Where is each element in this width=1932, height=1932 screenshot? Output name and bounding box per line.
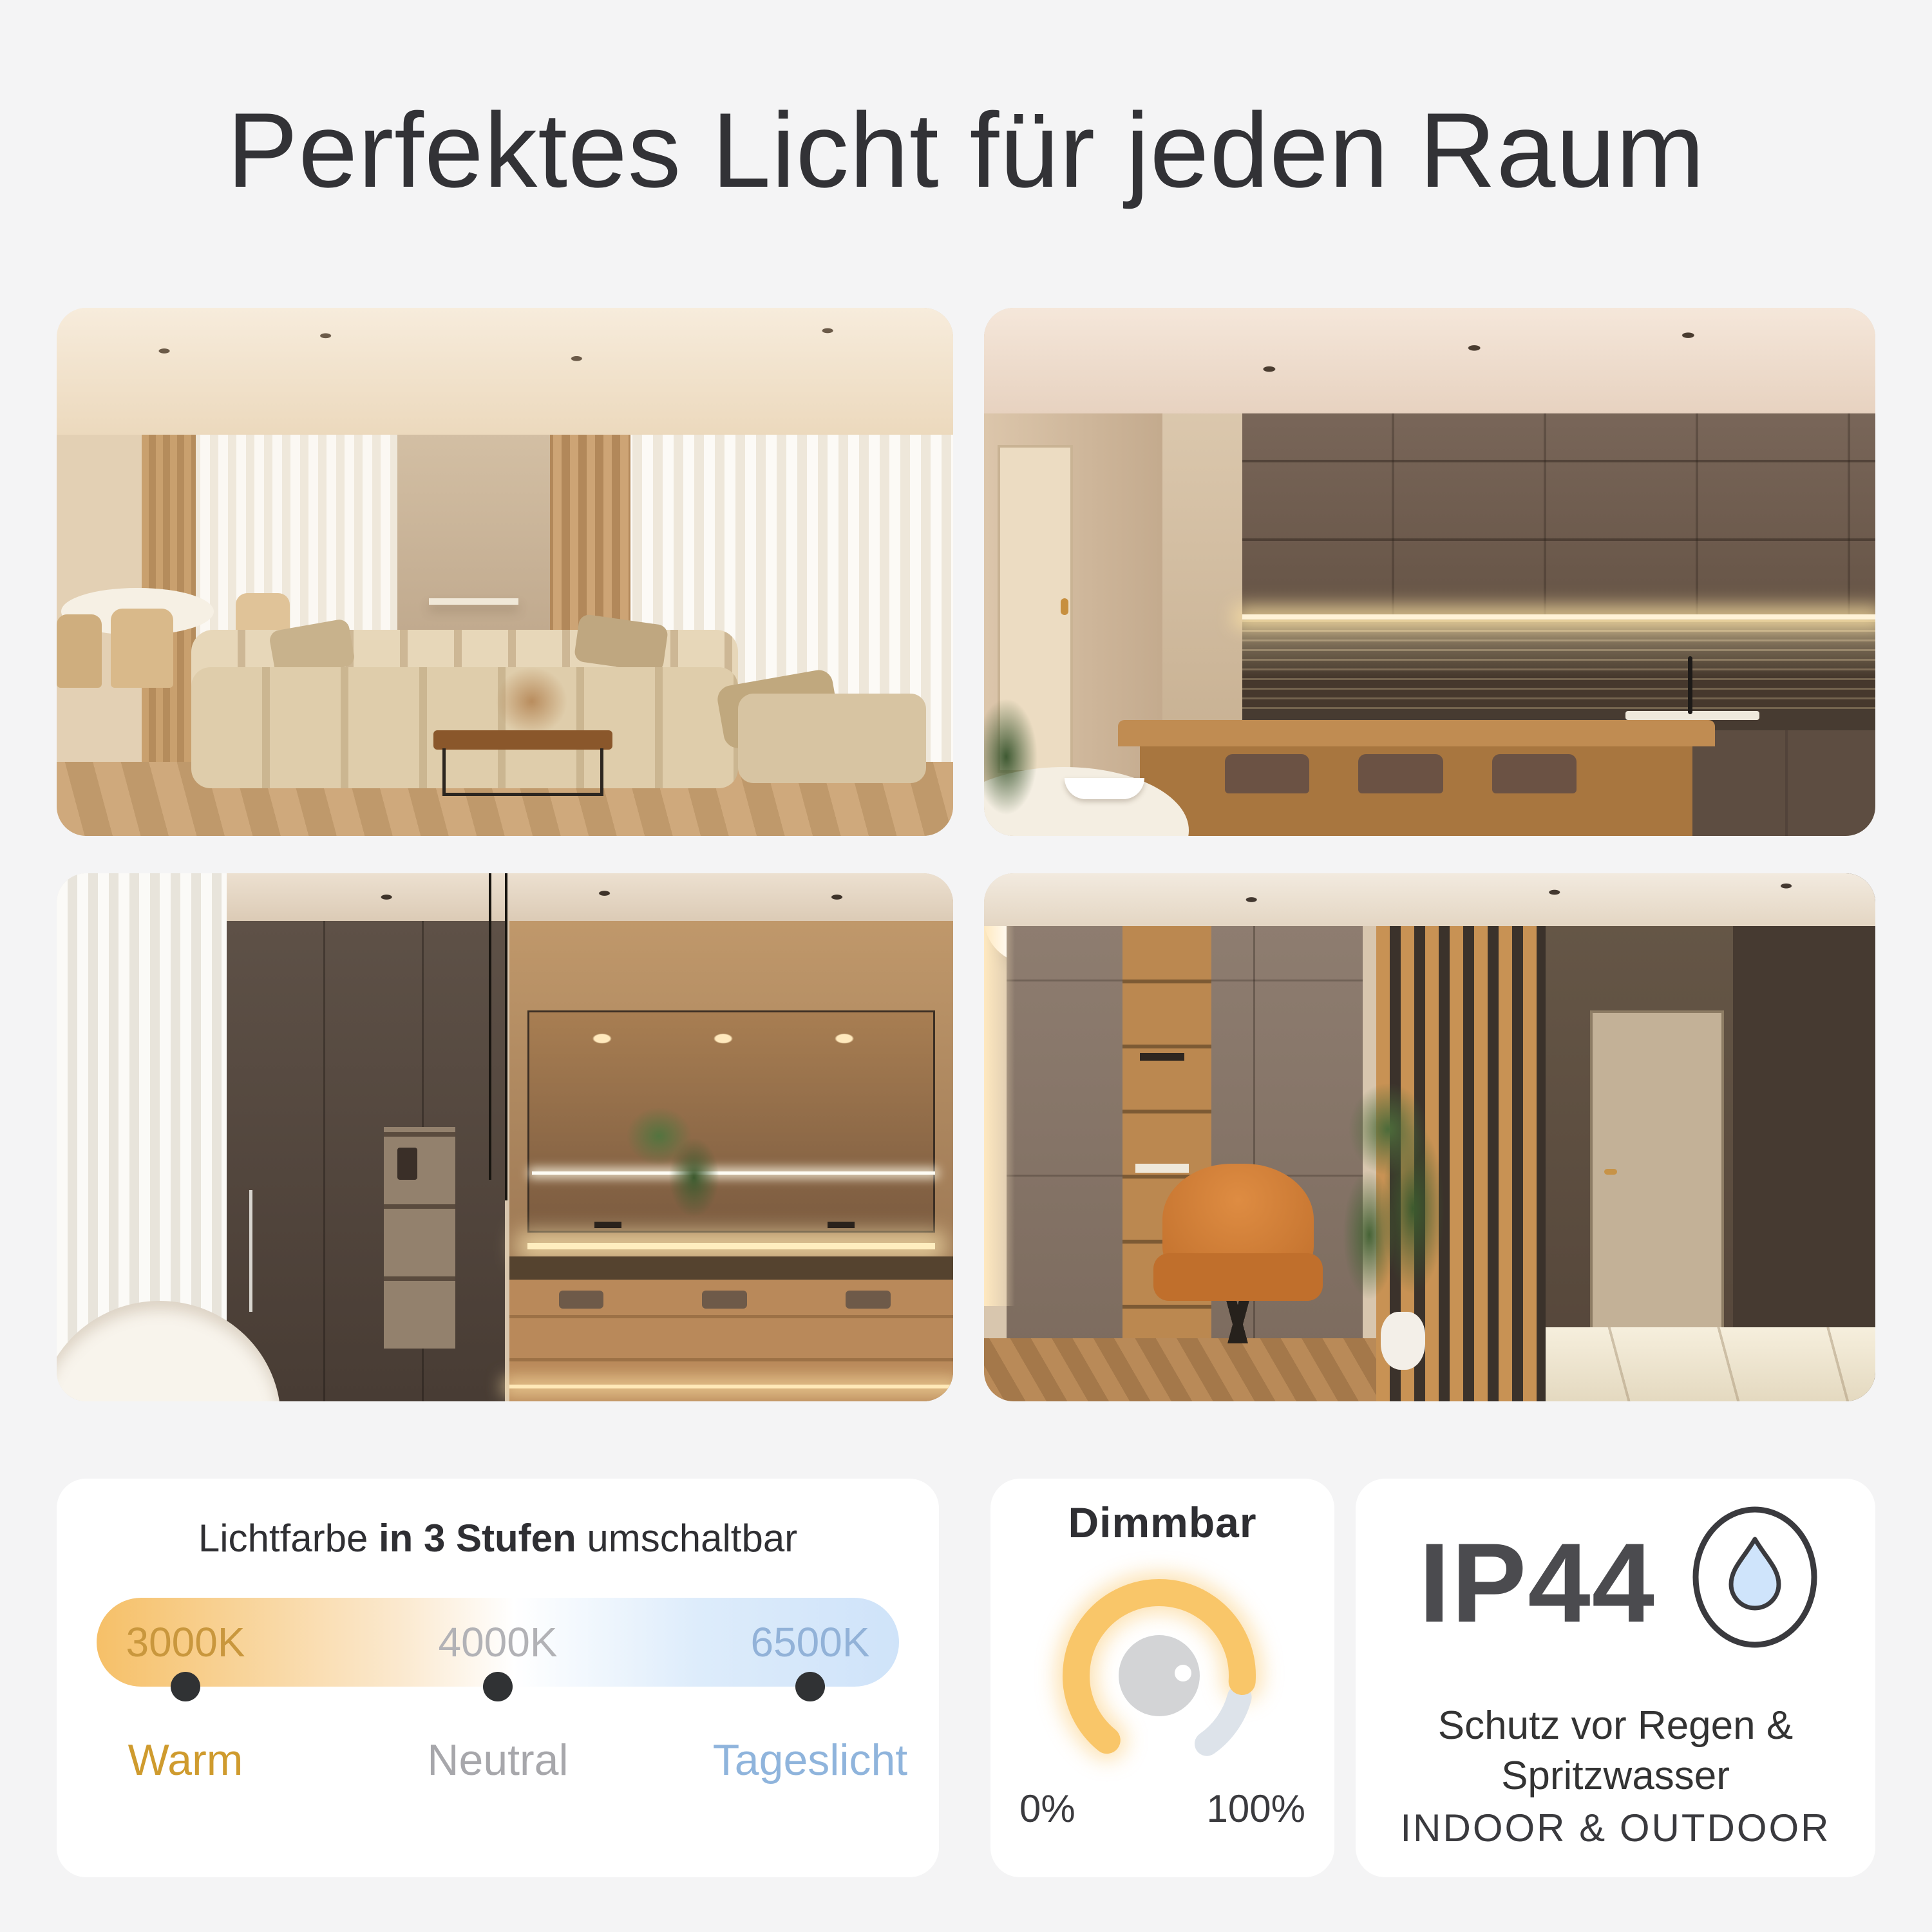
armchair-seat xyxy=(1153,1253,1323,1301)
ip44-panel: IP44 Schutz vor Regen & Spritzwasser IND… xyxy=(1356,1479,1875,1877)
towel xyxy=(846,1291,891,1309)
protection-text-line1: Schutz vor Regen & xyxy=(1356,1703,1875,1748)
heading-suffix: umschaltbar xyxy=(576,1517,797,1560)
dark-wall xyxy=(227,900,505,1401)
ceiling-spotlights xyxy=(57,308,953,435)
mosaic-backsplash xyxy=(1242,617,1875,710)
page-title: Perfektes Licht für jeden Raum xyxy=(0,95,1932,205)
step-marker-dot xyxy=(795,1672,825,1701)
under-cabinet-light xyxy=(1242,614,1875,620)
wood-floor xyxy=(984,1338,1412,1401)
sink xyxy=(1625,711,1759,720)
dimmer-knob-icon xyxy=(1011,1528,1307,1824)
step-marker-dot xyxy=(171,1672,200,1701)
plant xyxy=(1332,1063,1457,1327)
plant xyxy=(984,699,1037,815)
ceiling-spotlights xyxy=(984,873,1875,926)
wall-light-glow xyxy=(984,916,1015,1307)
bar-stool xyxy=(1492,754,1577,794)
step-marker-dot xyxy=(483,1672,513,1701)
pendant-cord xyxy=(505,873,507,1200)
door xyxy=(1590,1010,1724,1343)
faucet xyxy=(1688,656,1692,714)
ottoman xyxy=(738,694,926,783)
wall-corner xyxy=(1733,873,1875,1401)
bathroom-photo xyxy=(57,873,953,1401)
color-panel-heading: Lichtfarbe in 3 Stufen umschaltbar xyxy=(57,1516,939,1560)
protection-text-line3: INDOOR & OUTDOOR xyxy=(1356,1806,1875,1850)
tub-faucet xyxy=(249,1190,252,1312)
mirror xyxy=(527,1010,935,1232)
bowl xyxy=(1065,778,1145,799)
hallway-photo xyxy=(984,873,1875,1401)
dimmer-panel: Dimmbar 0% 100% xyxy=(990,1479,1334,1877)
books xyxy=(1140,1053,1184,1061)
coffee-table xyxy=(433,730,612,750)
bottle xyxy=(397,1148,417,1179)
vanity-counter xyxy=(509,1256,953,1280)
heading-bold: in 3 Stufen xyxy=(379,1517,576,1560)
door-handle xyxy=(1061,598,1068,615)
room-card-hall: Flur xyxy=(984,873,1875,1401)
pampas-decor xyxy=(496,667,567,736)
pendant-cord xyxy=(489,873,491,1180)
ceiling-spotlights xyxy=(227,873,953,921)
shelf-niche xyxy=(384,1127,455,1349)
armchair-legs xyxy=(1180,1296,1296,1343)
under-shelf-light xyxy=(527,1243,935,1249)
bar-stool xyxy=(1358,754,1443,794)
product-infographic: { "page": {"title": "Perfektes Licht für… xyxy=(0,0,1932,1932)
knob-indicator-dot xyxy=(1175,1665,1191,1681)
door-handle xyxy=(1604,1169,1617,1175)
dining-chair xyxy=(57,614,102,688)
step-name-warm: Warm xyxy=(128,1735,243,1785)
books xyxy=(1135,1164,1189,1173)
kitchen-photo xyxy=(984,308,1875,836)
ceiling-spotlights xyxy=(984,308,1875,413)
towel xyxy=(702,1291,747,1309)
mirror-light-strip xyxy=(532,1171,935,1175)
wall-faucet xyxy=(594,1222,621,1228)
living-room-photo xyxy=(57,308,953,836)
toe-kick-light xyxy=(509,1385,953,1388)
bar-stool xyxy=(1225,754,1309,794)
step-name-neutral: Neutral xyxy=(427,1735,568,1785)
wall-faucet xyxy=(828,1222,855,1228)
dimmer-min-label: 0% xyxy=(1019,1786,1075,1831)
heading-prefix: Lichtfarbe xyxy=(198,1517,379,1560)
dimmer-max-label: 100% xyxy=(1207,1786,1305,1831)
coffee-table-legs xyxy=(442,748,604,796)
protection-text-line2: Spritzwasser xyxy=(1356,1753,1875,1799)
room-card-bathroom: Badezimmer xyxy=(57,873,953,1401)
step-name-tageslicht: Tageslicht xyxy=(713,1735,907,1785)
ip-rating: IP44 xyxy=(1419,1519,1656,1648)
island-counter xyxy=(1118,720,1715,746)
room-card-living: Wohnzimmer xyxy=(57,308,953,836)
dining-chair xyxy=(111,609,173,688)
towel xyxy=(559,1291,604,1309)
water-drop-icon xyxy=(1681,1497,1829,1658)
room-card-kitchen: Küche xyxy=(984,308,1875,836)
plant xyxy=(612,1095,729,1232)
color-temperature-panel: Lichtfarbe in 3 Stufen umschaltbar 3000K… xyxy=(57,1479,939,1877)
wall-shelf xyxy=(429,598,518,605)
